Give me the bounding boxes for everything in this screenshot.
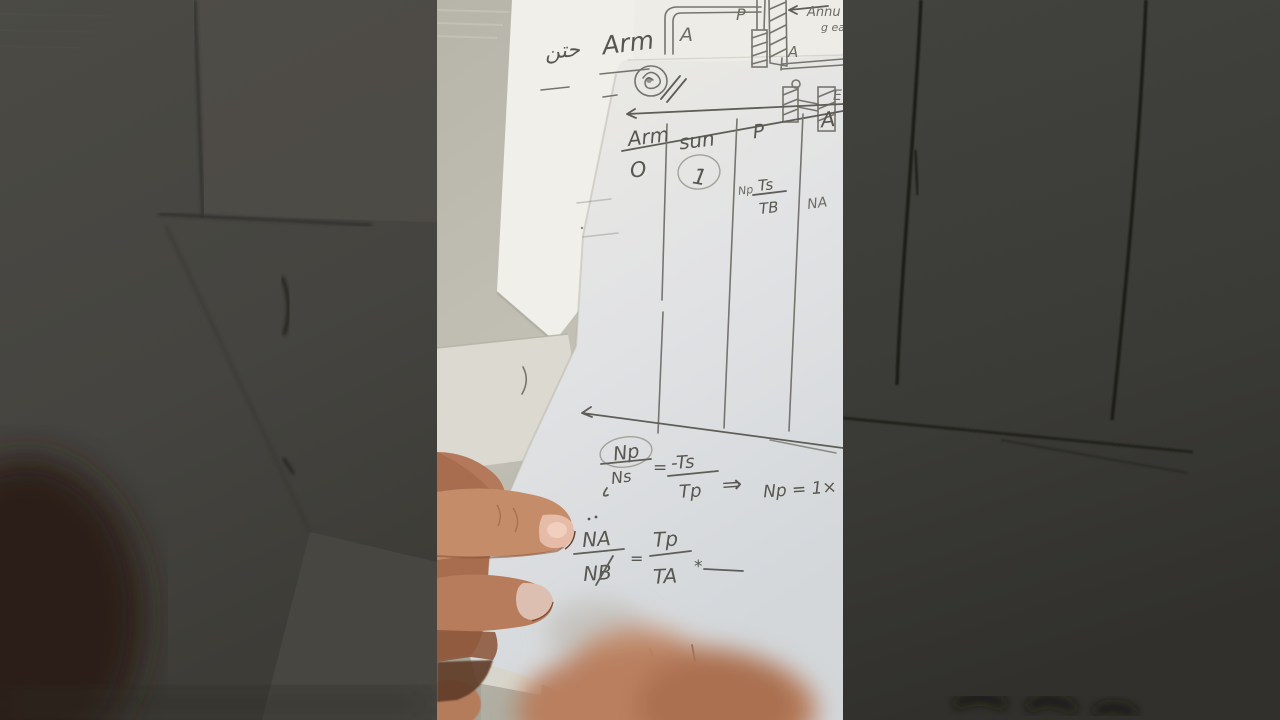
row1-arm-value: O [628,157,648,183]
eq2-equals: = [630,549,643,568]
eq2-denominator-2: TA [652,563,677,588]
doodle-center [646,77,652,83]
eq2-times-mark: * [694,557,703,577]
photo-art: حتن Arm A P Annu g ea [437,0,843,720]
e-label: E [833,88,842,104]
row1-p-prefix: Np [737,183,754,198]
hand-lower-shade [437,630,498,662]
bottom-shadow-blur [0,688,437,720]
left-panel-art [0,0,437,720]
photo-strip: حتن Arm A P Annu g ea [437,0,843,720]
eq2-numerator-2: Tp [652,526,678,551]
pencil-dot [581,227,583,229]
eq1-denominator-2: Tp [678,480,702,503]
annulus-label-1: Annu [806,5,841,20]
fingernail-highlight [547,522,567,538]
right-panel-background [843,0,1280,720]
right-panel-art [843,0,1280,720]
row1-a-value: NA [806,194,828,213]
annulus-label-2: g ea [821,21,843,34]
eq1-numerator-2: -Ts [670,452,695,475]
table-header-sun: sun [678,126,716,154]
eq1-equals: = [653,458,667,478]
arm-a-label: A [678,24,693,46]
letterbox-left-panel [0,0,437,720]
video-frame: حتن Arm A P Annu g ea [0,0,1280,720]
eq2-dot-2 [595,516,598,519]
paper-blur-top [195,0,437,222]
eq1-denominator-1: Ns [610,466,633,488]
row1-p-denominator: TB [758,198,779,218]
arabic-note-text: حتن [544,37,582,65]
eq2-dot-1 [588,518,591,521]
lower-a-label: A [787,43,798,61]
eq2-numerator-1: NA [581,526,611,552]
p-label: P [736,5,746,24]
letterbox-right-panel [843,0,1280,720]
eq1-implies-arrow: ⇒ [721,470,743,499]
